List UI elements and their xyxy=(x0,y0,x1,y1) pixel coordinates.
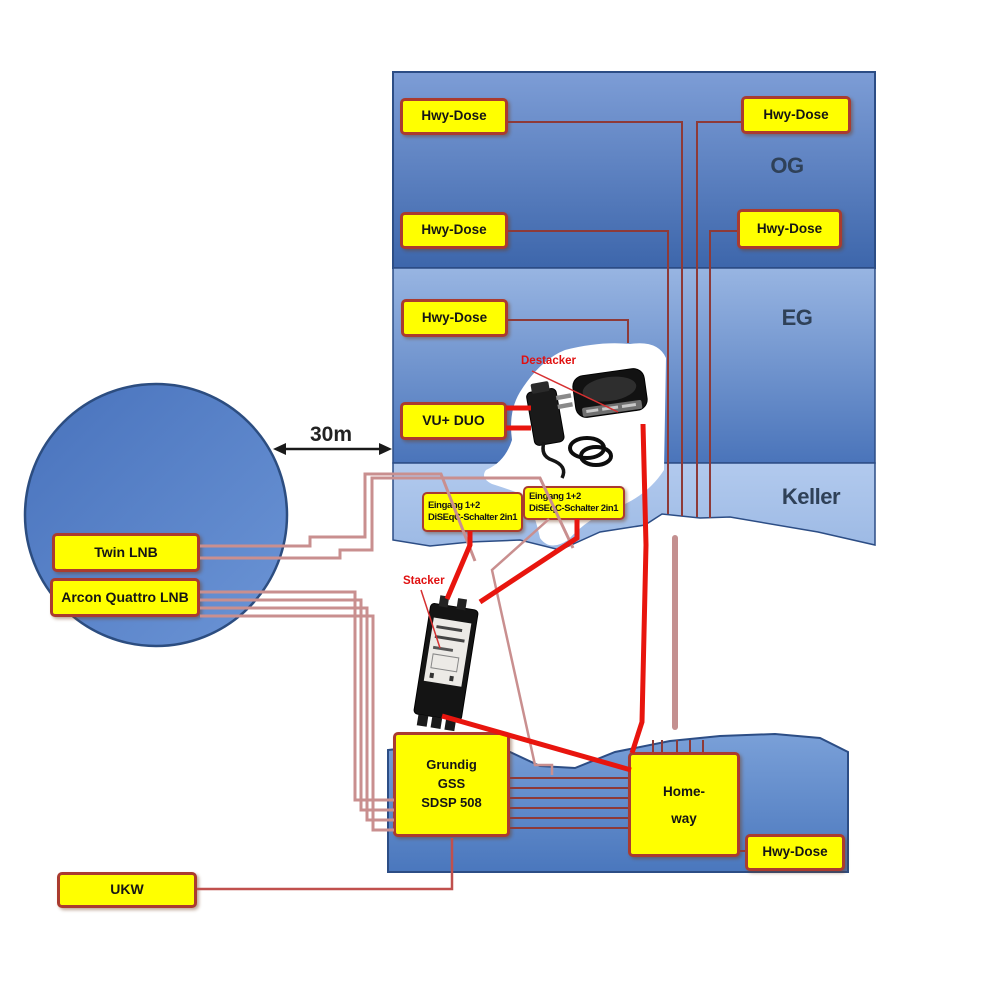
homeway-box: Home- way xyxy=(628,752,740,857)
floor-label-keller: Keller xyxy=(765,484,857,510)
destacker-label: Destacker xyxy=(521,355,576,367)
label-layer: OG EG Keller 30m Hwy-Dose Hwy-Dose Hwy-D… xyxy=(0,0,997,1000)
hwy-dose-box-og-left: Hwy-Dose xyxy=(400,98,508,135)
hwy-dose-box-og2-left: Hwy-Dose xyxy=(400,212,508,249)
diseqc-switch-box-left: Eingang 1+2 DiSEqC-Schalter 2in1 xyxy=(422,492,523,532)
distance-label: 30m xyxy=(300,423,362,447)
sat-distribution-diagram: OG EG Keller 30m Hwy-Dose Hwy-Dose Hwy-D… xyxy=(0,0,997,1000)
hwy-dose-box-og-right: Hwy-Dose xyxy=(741,96,851,134)
diseqc-switch-box-right: Eingang 1+2 DiSEqC-Schalter 2in1 xyxy=(523,486,625,520)
arcon-quattro-lnb-box: Arcon Quattro LNB xyxy=(50,578,200,617)
hwy-dose-box-bottom: Hwy-Dose xyxy=(745,834,845,871)
stacker-label: Stacker xyxy=(403,575,445,587)
grundig-multiswitch-box: Grundig GSS SDSP 508 xyxy=(393,732,510,837)
hwy-dose-box-og2-right: Hwy-Dose xyxy=(737,209,842,249)
floor-label-eg: EG xyxy=(767,305,827,331)
ukw-box: UKW xyxy=(57,872,197,908)
vu-duo-box: VU+ DUO xyxy=(400,402,507,440)
twin-lnb-box: Twin LNB xyxy=(52,533,200,572)
hwy-dose-box-eg: Hwy-Dose xyxy=(401,299,508,337)
floor-label-og: OG xyxy=(757,153,817,179)
